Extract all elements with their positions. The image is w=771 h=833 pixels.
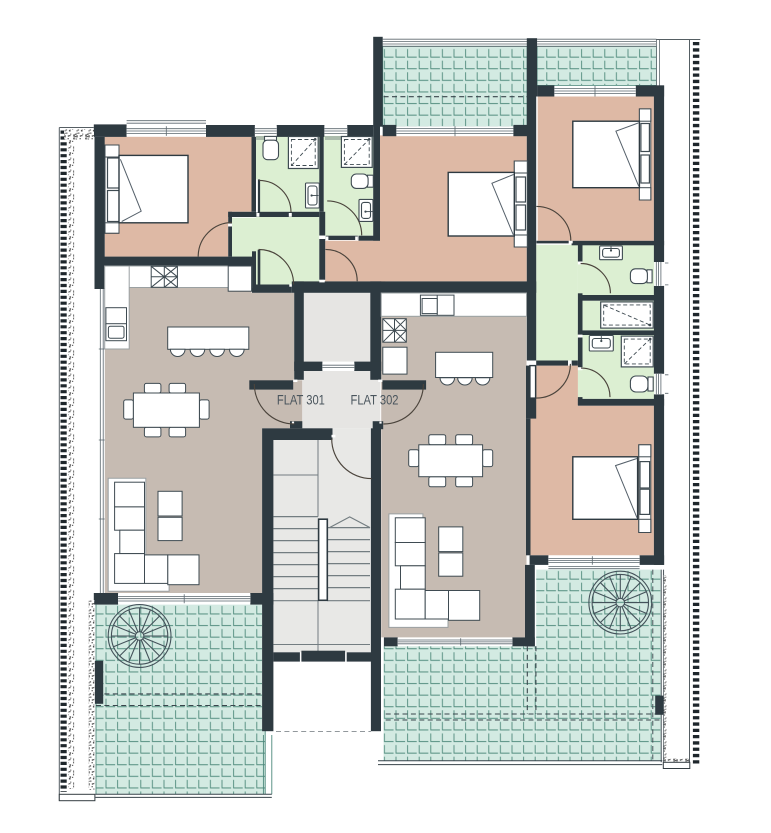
svg-text:FLAT 302: FLAT 302: [351, 392, 399, 407]
svg-text:FLAT 301: FLAT 301: [277, 392, 325, 407]
